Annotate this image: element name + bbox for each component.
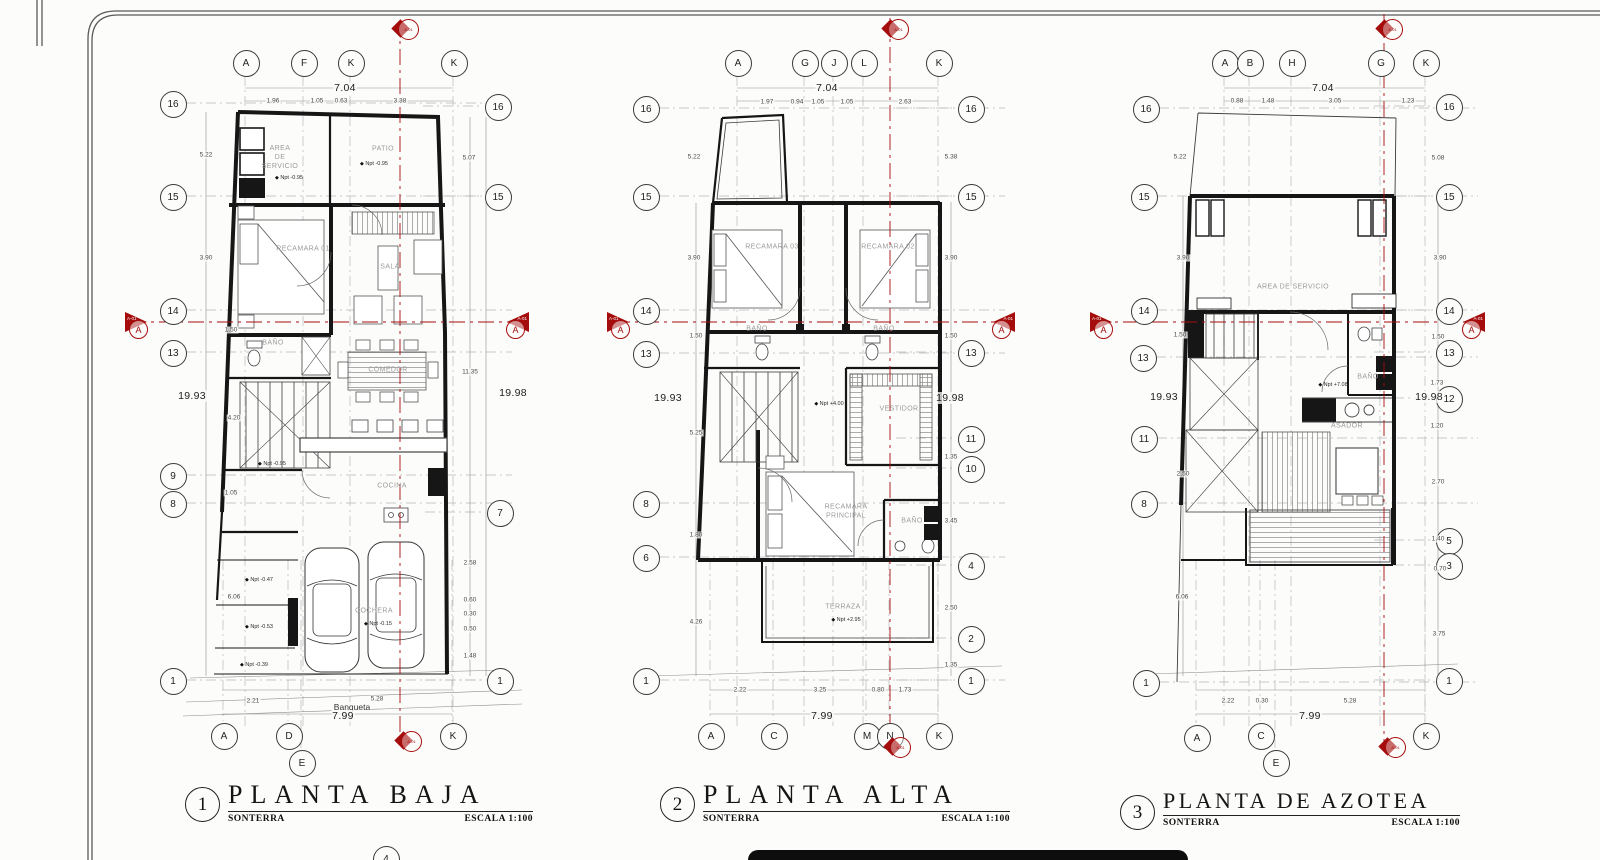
plan-number: 1 bbox=[198, 794, 208, 816]
project-name: SONTERRA bbox=[228, 814, 285, 824]
title-block-planta-azotea: 3 PLANTA DE AZOTEA SONTERRA ESCALA 1:100 bbox=[1120, 788, 1460, 830]
project-name: SONTERRA bbox=[1163, 818, 1220, 828]
project-name: SONTERRA bbox=[703, 814, 760, 824]
plan-number: 2 bbox=[673, 794, 683, 816]
plan-title: PLANTA ALTA bbox=[703, 780, 1010, 810]
title-block-planta-baja: 1 PLANTA BAJA SONTERRA ESCALA 1:100 bbox=[185, 780, 533, 824]
plan-number-circle: 3 bbox=[1120, 795, 1155, 830]
plan-linework bbox=[0, 0, 1600, 860]
scale-label: ESCALA 1:100 bbox=[1391, 818, 1460, 828]
blueprint-sheet: AFKK16151413981161571ADEK47.041.961.050.… bbox=[0, 0, 1600, 860]
plan-title: PLANTA DE AZOTEA bbox=[1163, 788, 1460, 814]
title-underline bbox=[228, 811, 533, 812]
plan-alta-drawing bbox=[698, 115, 940, 642]
plan-title: PLANTA BAJA bbox=[228, 780, 533, 810]
title-block-planta-alta: 2 PLANTA ALTA SONTERRA ESCALA 1:100 bbox=[660, 780, 1010, 824]
title-underline bbox=[703, 811, 1010, 812]
bottom-sheet-tab bbox=[748, 850, 1188, 860]
plan-azotea-drawing bbox=[1177, 113, 1396, 682]
scale-label: ESCALA 1:100 bbox=[464, 814, 533, 824]
title-underline bbox=[1163, 815, 1460, 816]
scale-label: ESCALA 1:100 bbox=[941, 814, 1010, 824]
plan-number-circle: 2 bbox=[660, 787, 695, 822]
plan-number-circle: 1 bbox=[185, 787, 220, 822]
plan-number: 3 bbox=[1133, 802, 1143, 824]
sheet-border bbox=[37, 0, 1600, 860]
